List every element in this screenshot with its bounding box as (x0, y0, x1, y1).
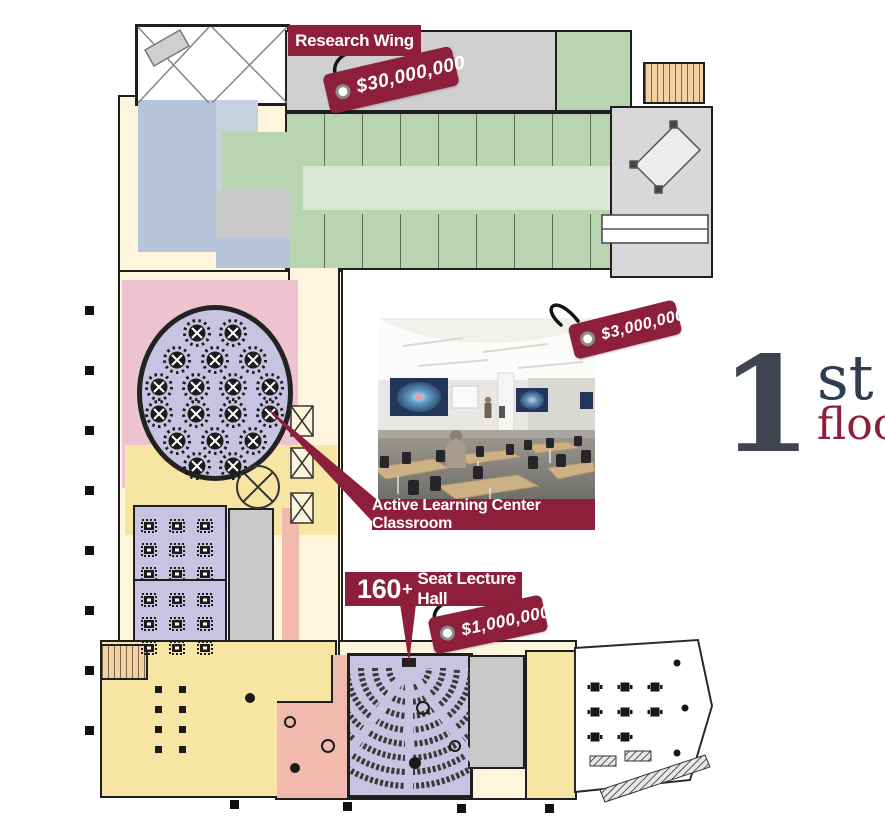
tag-grommet-icon (579, 330, 597, 348)
green-rooms-left-wing (222, 132, 290, 190)
stair-tan-commons (100, 644, 148, 680)
active-learning-label-text: Active Learning Center Classroom (372, 497, 595, 533)
research-wing-label: Research Wing (288, 25, 421, 56)
floor-word: floor (817, 407, 885, 442)
tag-grommet-icon (439, 624, 457, 642)
gray-rooms-mid (228, 508, 274, 642)
classroom-block (133, 505, 227, 653)
blue-room-small (216, 238, 290, 268)
research-wing-label-text: Research Wing (295, 31, 414, 51)
lab-corridor (303, 166, 613, 210)
research-wing-green-rooms-top (555, 30, 632, 112)
stairwell-tan-top-right (643, 62, 705, 104)
research-lab-block (285, 112, 632, 270)
ballroom-oval (137, 305, 293, 481)
floor-number: 1 (720, 352, 812, 460)
classroom-photo-scene (378, 318, 595, 501)
classroom-photo (378, 318, 595, 501)
tag-grommet-icon (334, 82, 352, 100)
gray-room-bottom-right (468, 655, 525, 769)
salmon-strip (282, 508, 299, 642)
lab-room-dividers-top (287, 114, 630, 166)
yellow-rooms-small (277, 655, 333, 703)
lecture-hall-label: 160 + Seat Lecture Hall (345, 572, 522, 606)
floor-indicator: 1 st floor (720, 352, 885, 460)
lecture-hall-seat-count: 160 (357, 576, 401, 603)
terrace-area (575, 640, 712, 802)
classroom-divider (135, 579, 225, 581)
floor-ordinal: st (817, 352, 885, 405)
active-learning-classroom-label: Active Learning Center Classroom (372, 499, 595, 530)
gray-rooms-left-wing (216, 190, 290, 238)
lecture-hall-area (347, 653, 473, 798)
lab-room-dividers-bottom (287, 214, 630, 268)
library-blue-room (138, 100, 216, 252)
mechanical-area (135, 24, 290, 106)
yellow-column-right (525, 650, 577, 800)
loading-dock-area (610, 106, 713, 278)
lecture-hall-plus: + (402, 579, 412, 600)
